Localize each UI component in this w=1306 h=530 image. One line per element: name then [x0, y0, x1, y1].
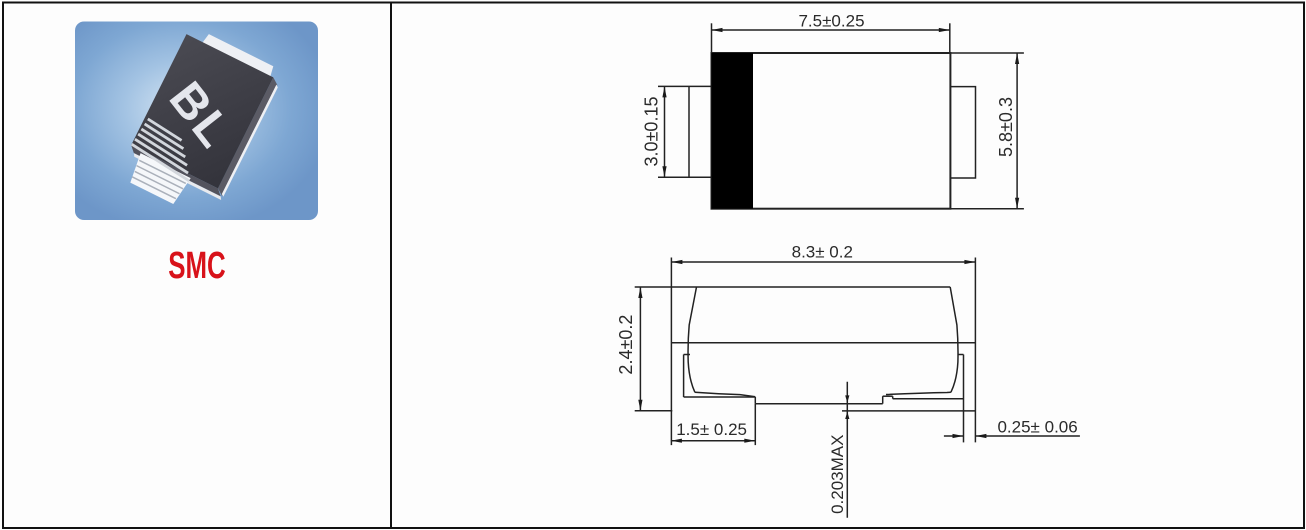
svg-text:1.5± 0.25: 1.5± 0.25	[676, 420, 747, 439]
svg-text:SMC: SMC	[168, 244, 225, 286]
svg-text:2.4±0.2: 2.4±0.2	[616, 315, 636, 375]
svg-text:0.25± 0.06: 0.25± 0.06	[997, 417, 1077, 436]
svg-text:5.8±0.3: 5.8±0.3	[996, 97, 1016, 157]
svg-text:8.3± 0.2: 8.3± 0.2	[792, 243, 853, 262]
svg-text:3.0±0.15: 3.0±0.15	[642, 97, 662, 167]
svg-text:7.5±0.25: 7.5±0.25	[798, 12, 864, 31]
svg-text:0.203MAX: 0.203MAX	[828, 435, 847, 514]
